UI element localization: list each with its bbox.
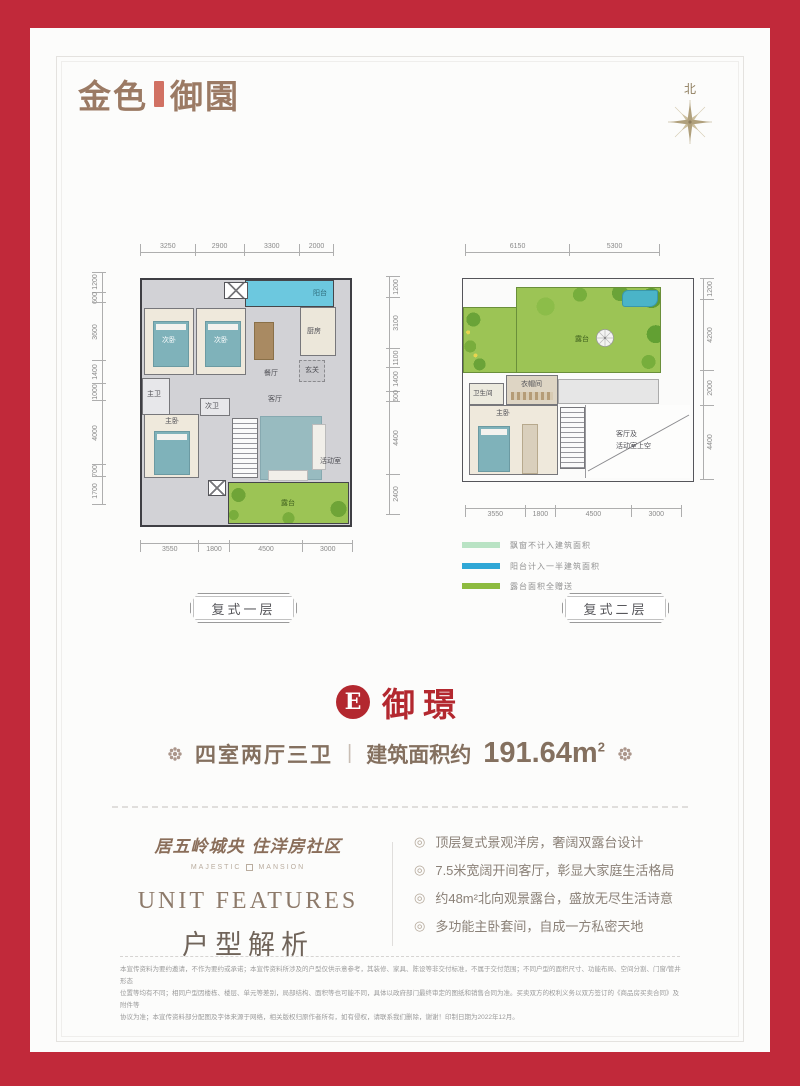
dim-segment: 4400 [386, 401, 400, 474]
compass: 北 [662, 80, 718, 150]
dim-segment: 3550 [140, 540, 198, 552]
bullet-icon: ◎ [414, 919, 425, 932]
dim-segment: 1400 [386, 367, 400, 391]
dim-segment: 6150 [465, 244, 569, 256]
unit-area-value: 191.64m2 [483, 737, 605, 770]
dim-segment: 1800 [198, 540, 228, 552]
unit-spec: 四室两厅三卫 | 建筑面积约 191.64m2 [0, 737, 800, 770]
dim-segment: 3550 [465, 505, 525, 517]
dim-segment: 1200 [700, 278, 714, 299]
dim-segment: 1700 [92, 476, 106, 505]
spec-separator: | [347, 742, 352, 765]
features-header: 居五岭城央 住洋房社区 MAJESTIC MANSION UNIT FEATUR… [128, 832, 368, 962]
shaft-box [208, 480, 226, 496]
umbrella-icon [595, 328, 615, 348]
stairs-2 [560, 407, 585, 469]
room-master-bath: 主卫 [142, 378, 170, 415]
compass-rose-icon [667, 99, 713, 145]
room-bedroom-a: 次卧 [144, 308, 194, 375]
poster-canvas: 金色 御園 北 3250 2900 3300 2000 1200 600 360… [0, 0, 800, 1086]
dim-segment: 2400 [386, 474, 400, 515]
legend-item: 阳台计入一半建筑面积 [462, 561, 600, 571]
dashed-divider-top [112, 806, 688, 808]
room-master-bedroom: 主卧 [144, 414, 199, 478]
dim-segment: 1200 [92, 272, 106, 292]
legend-swatch-blue [462, 563, 500, 569]
brand-slogan-en: MAJESTIC MANSION [128, 864, 368, 871]
room-dining-label: 餐厅 [264, 370, 278, 378]
tv-cabinet [522, 424, 538, 474]
disclaimer-line: 本宣传资料为要约邀请，不作为要约或承诺；本宣传资料所涉及的户型仅供示意参考，其装… [120, 964, 682, 988]
dashed-divider-bottom [120, 956, 680, 957]
feature-bullet-list: ◎ 顶层复式景观洋房，奢阔双露台设计 ◎ 7.5米宽阔开间客厅，彰显大家庭生活格… [414, 834, 694, 946]
unit-title: E 御璟 [0, 678, 800, 726]
floor-plan-2: 露台 卫生间 衣帽间 主卧 [462, 278, 694, 482]
plan1-dims-top: 3250 2900 3300 2000 [140, 244, 334, 256]
room-void: 客厅及 活动室上空 [585, 405, 690, 478]
compass-north-label: 北 [662, 80, 718, 97]
roof-area [558, 379, 659, 404]
room-terrace2-label: 露台 [575, 336, 589, 344]
elevator-shaft [224, 282, 248, 299]
bullet-icon: ◎ [414, 835, 425, 848]
dim-segment: 2000 [700, 370, 714, 404]
room-bedroom-b: 次卧 [196, 308, 246, 375]
room-foyer: 玄关 [299, 360, 325, 382]
dim-segment: 600 [92, 292, 106, 302]
feature-bullet: ◎ 多功能主卧套间，自成一方私密天地 [414, 918, 694, 933]
unit-name: 御璟 [382, 678, 464, 726]
legend-swatch-green [462, 542, 500, 548]
logo-seal [154, 81, 164, 107]
room-terrace: 露台 [228, 482, 349, 524]
plan1-label: 复式一层 [190, 593, 297, 623]
dim-segment: 1400 [92, 360, 106, 383]
dim-segment: 2000 [299, 244, 334, 256]
bullet-icon: ◎ [414, 891, 425, 904]
unit-area-prefix: 建筑面积约 [366, 739, 471, 769]
room-roof-terrace-main: 露台 [516, 287, 661, 373]
plan1-dims-right: 1200 3100 1100 1400 600 4400 2400 [386, 276, 400, 515]
logo-text-right: 御園 [170, 70, 240, 118]
unit-letter-badge: E [336, 685, 370, 719]
room-master-bedroom-2: 主卧 [469, 405, 558, 475]
disclaimer-line: 协议为准；本宣传资料部分配图及字体来源于网络，相关版权归原作者所有，如有侵权，请… [120, 1012, 682, 1024]
features-title-en: UNIT FEATURES [128, 888, 368, 915]
room-activity-label: 活动室 [320, 458, 341, 466]
plan1-dims-bottom: 3550 1800 4500 3000 [140, 540, 353, 552]
dim-segment: 2900 [195, 244, 244, 256]
bullet-icon: ◎ [414, 863, 425, 876]
vertical-divider [392, 842, 393, 946]
room-roof-terrace-left [463, 307, 517, 373]
room-bathroom: 卫生间 [469, 383, 504, 405]
dim-segment: 3250 [140, 244, 195, 256]
dim-segment: 4200 [700, 299, 714, 370]
dim-segment: 3600 [92, 302, 106, 360]
dim-segment: 3000 [302, 540, 353, 552]
plan2-dims-top: 6150 5300 [465, 244, 660, 256]
floor-plan-1: 阳台 厨房 次卧 次卧 餐厅 玄关 客厅 主卫 [140, 278, 352, 527]
brand-logo: 金色 御園 [78, 70, 240, 118]
dim-segment: 600 [386, 391, 400, 402]
plan1-dims-left: 1200 600 3600 1400 1000 4000 700 1700 [92, 272, 106, 505]
dim-segment: 4500 [555, 505, 630, 517]
dim-segment: 3100 [386, 297, 400, 348]
logo-text-left: 金色 [78, 70, 148, 118]
dim-segment: 1100 [386, 348, 400, 367]
rosette-icon [617, 746, 633, 762]
disclaimer: 本宣传资料为要约邀请，不作为要约或承诺；本宣传资料所涉及的户型仅供示意参考，其装… [120, 964, 682, 1024]
room-second-bath: 次卫 [200, 398, 230, 416]
stairs [232, 418, 258, 478]
disclaimer-line: 位置等均有不同；相同户型因楼栋、楼层、单元等差别，局部结构、面积等也可能不同，具… [120, 988, 682, 1012]
room-closet: 衣帽间 [506, 375, 558, 405]
dim-segment: 1000 [92, 383, 106, 400]
legend-item: 露台面积全赠送 [462, 581, 573, 591]
brand-slogan: 居五岭城央 住洋房社区 [128, 832, 368, 857]
dim-segment: 3000 [631, 505, 683, 517]
dim-segment: 700 [92, 464, 106, 476]
legend-item: 飘窗不计入建筑面积 [462, 540, 591, 550]
dim-segment: 1800 [525, 505, 556, 517]
dim-segment: 4000 [92, 400, 106, 464]
plan2-label: 复式二层 [562, 593, 669, 623]
unit-layout: 四室两厅三卫 [195, 739, 333, 769]
dim-segment: 4500 [229, 540, 303, 552]
room-balcony: 阳台 [245, 280, 334, 307]
feature-bullet: ◎ 约48m²北向观景露台，盛放无尽生活诗意 [414, 890, 694, 905]
dim-segment: 3300 [244, 244, 299, 256]
rosette-icon [167, 746, 183, 762]
square-ornament-icon [246, 864, 253, 871]
feature-bullet: ◎ 7.5米宽阔开间客厅，彰显大家庭生活格局 [414, 862, 694, 877]
room-living-label: 客厅 [268, 396, 282, 404]
dining-table [254, 322, 274, 360]
living-sofa-2 [268, 470, 308, 481]
dim-segment: 1200 [386, 276, 400, 297]
plan2-dims-right: 1200 4200 2000 4400 [700, 278, 714, 480]
plan2-dims-bottom: 3550 1800 4500 3000 [465, 505, 682, 517]
dim-segment: 5300 [569, 244, 660, 256]
legend-swatch-olive [462, 583, 500, 589]
feature-bullet: ◎ 顶层复式景观洋房，奢阔双露台设计 [414, 834, 694, 849]
room-kitchen: 厨房 [300, 307, 336, 356]
terrace-pool [622, 290, 658, 307]
dim-segment: 4400 [700, 405, 714, 480]
